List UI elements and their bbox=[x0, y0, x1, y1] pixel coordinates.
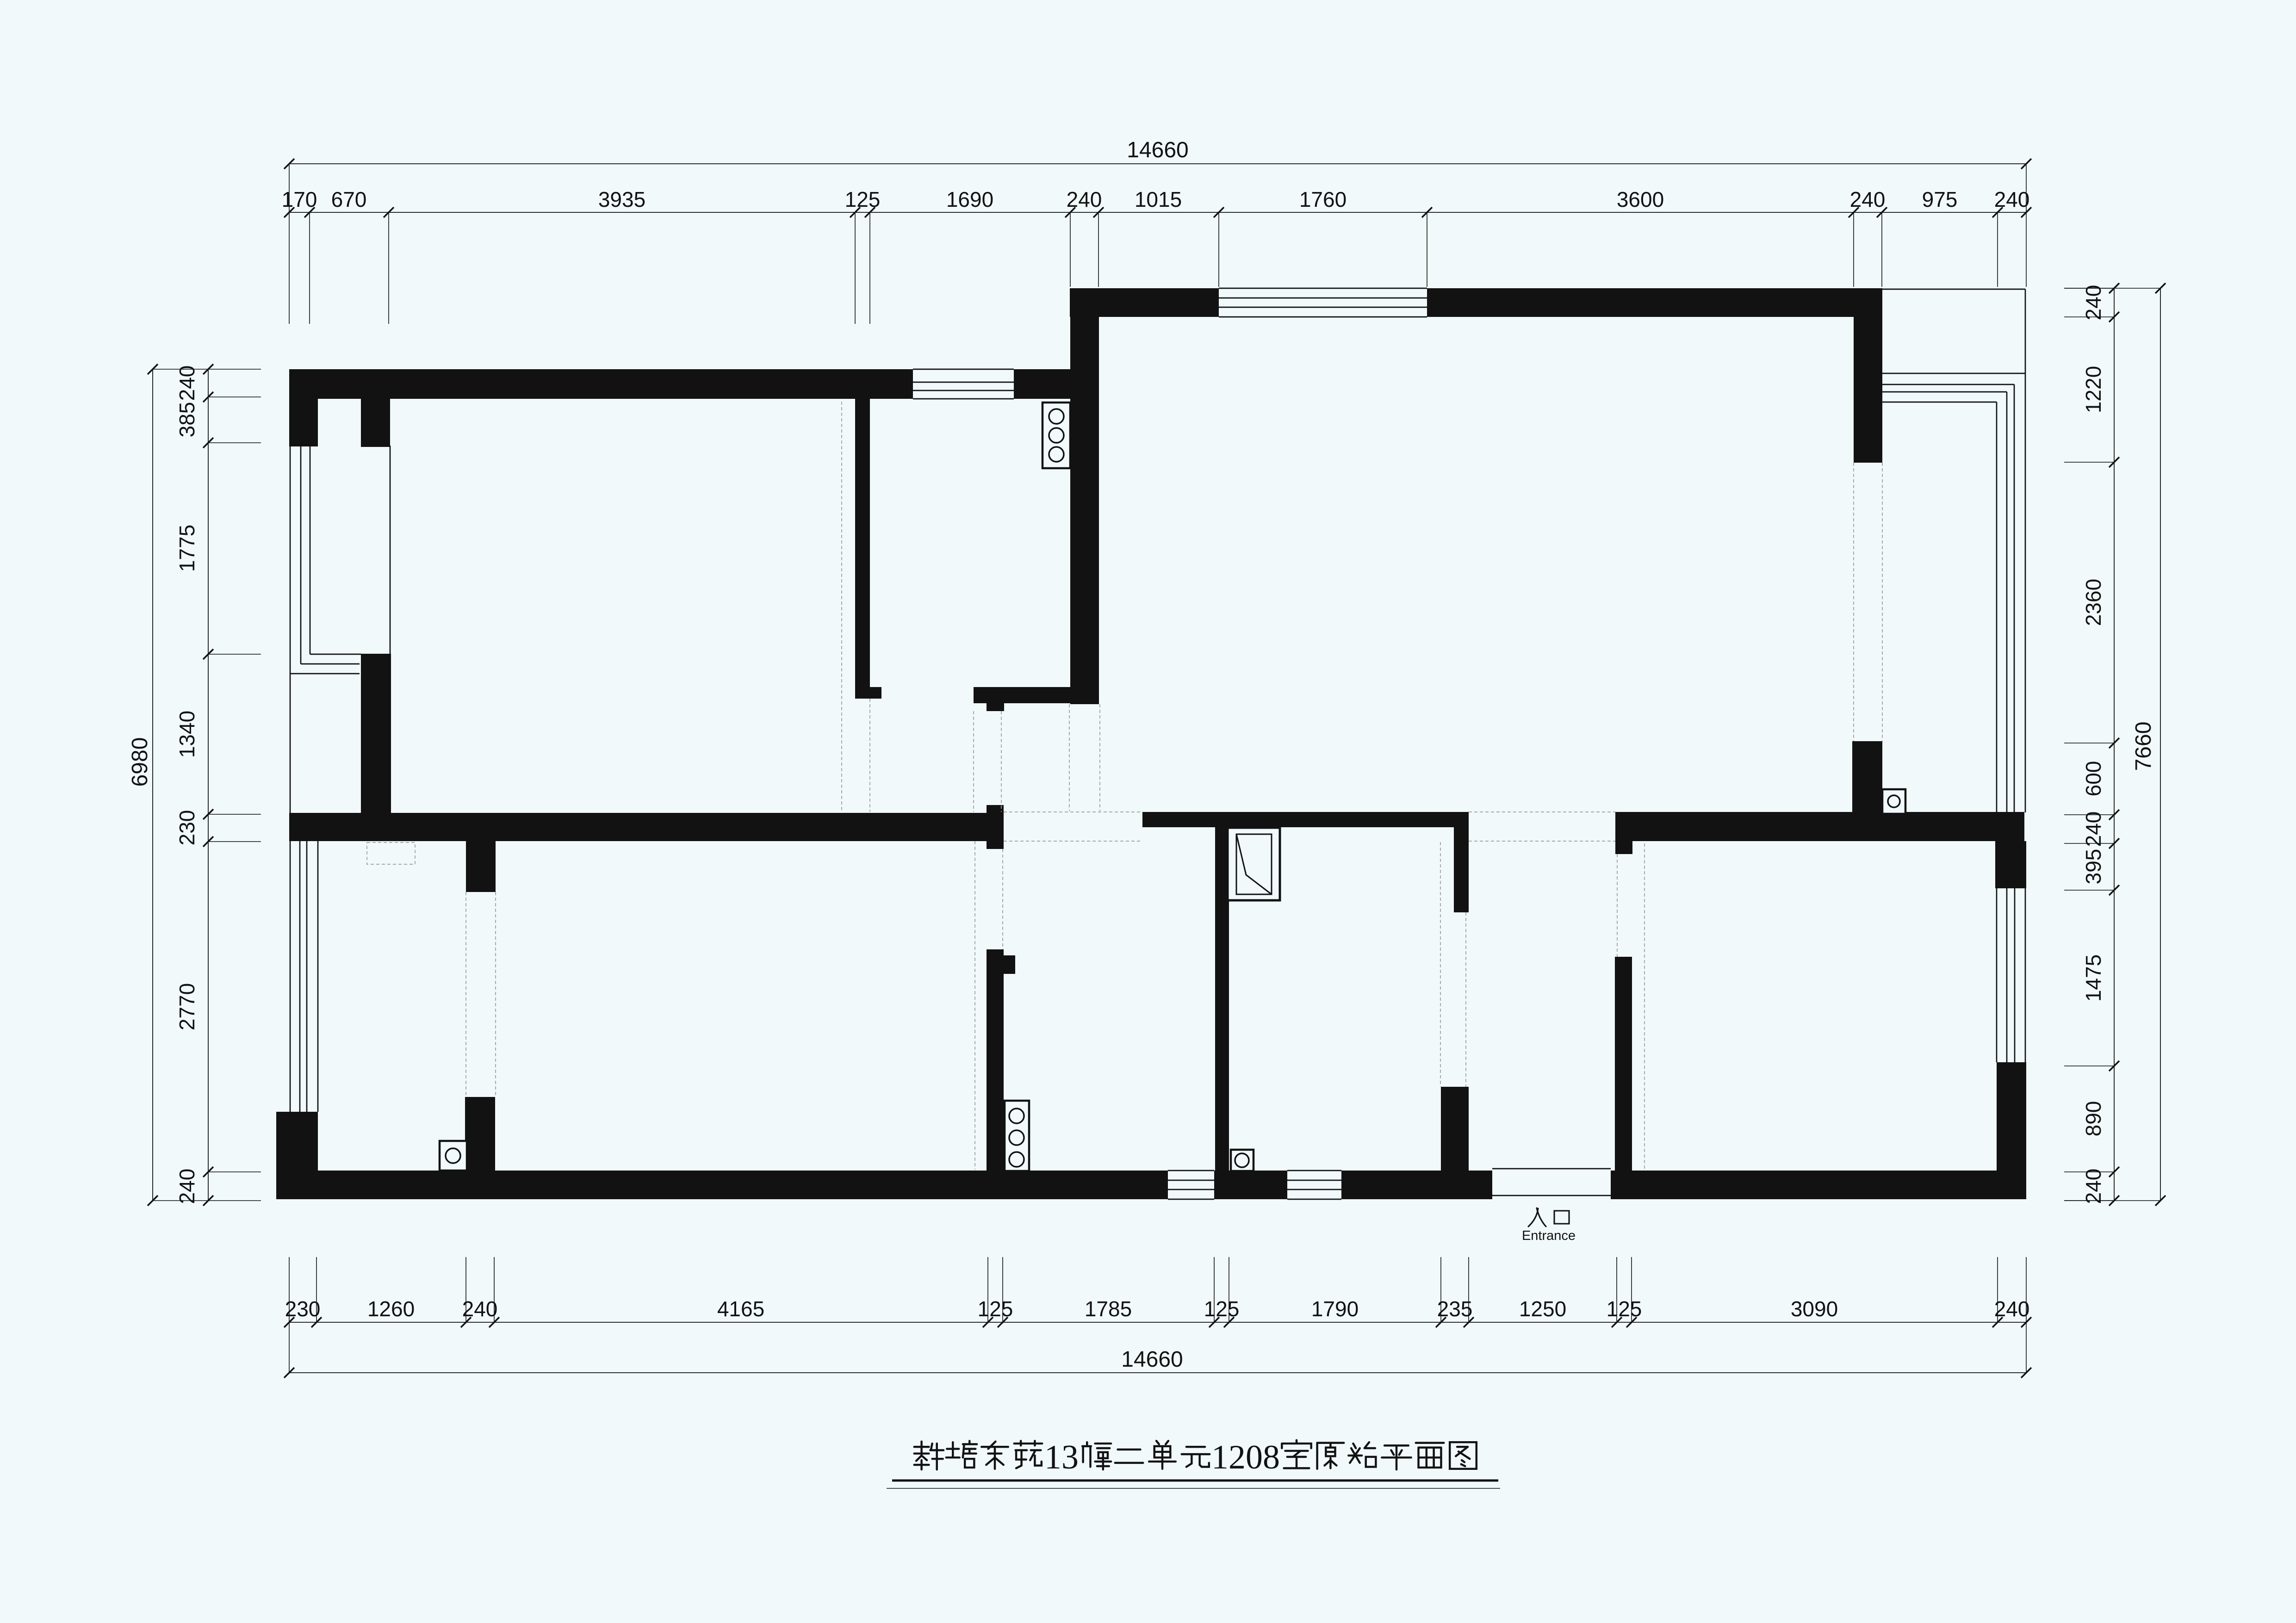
svg-text:235: 235 bbox=[1437, 1297, 1473, 1321]
svg-text:975: 975 bbox=[1922, 187, 1958, 211]
svg-text:230: 230 bbox=[175, 810, 199, 846]
svg-text:1775: 1775 bbox=[175, 525, 199, 572]
svg-text:395: 395 bbox=[2081, 849, 2105, 885]
svg-text:14660: 14660 bbox=[1121, 1347, 1183, 1372]
svg-text:1785: 1785 bbox=[1085, 1297, 1132, 1321]
svg-text:14660: 14660 bbox=[1127, 138, 1188, 162]
svg-text:1250: 1250 bbox=[1519, 1297, 1566, 1321]
svg-text:890: 890 bbox=[2081, 1101, 2105, 1137]
svg-text:600: 600 bbox=[2081, 761, 2105, 797]
svg-text:240: 240 bbox=[175, 1169, 199, 1204]
svg-text:670: 670 bbox=[331, 187, 367, 211]
svg-text:13: 13 bbox=[1044, 1438, 1079, 1476]
svg-text:240: 240 bbox=[1850, 187, 1886, 211]
svg-text:240: 240 bbox=[2081, 811, 2105, 847]
svg-text:Entrance: Entrance bbox=[1522, 1228, 1576, 1243]
svg-text:1260: 1260 bbox=[367, 1297, 415, 1321]
svg-text:230: 230 bbox=[285, 1297, 321, 1321]
svg-text:125: 125 bbox=[1607, 1297, 1642, 1321]
svg-text:240: 240 bbox=[1994, 187, 2030, 211]
svg-text:3090: 3090 bbox=[1791, 1297, 1838, 1321]
svg-text:125: 125 bbox=[845, 187, 881, 211]
svg-text:125: 125 bbox=[1204, 1297, 1240, 1321]
svg-text:4165: 4165 bbox=[717, 1297, 764, 1321]
svg-text:125: 125 bbox=[978, 1297, 1013, 1321]
svg-text:240: 240 bbox=[1994, 1297, 2030, 1321]
svg-text:385: 385 bbox=[175, 402, 199, 438]
svg-text:1790: 1790 bbox=[1311, 1297, 1359, 1321]
svg-text:3600: 3600 bbox=[1617, 187, 1664, 211]
svg-text:1760: 1760 bbox=[1299, 187, 1347, 211]
svg-text:1208: 1208 bbox=[1211, 1438, 1280, 1476]
svg-text:6980: 6980 bbox=[128, 737, 152, 787]
svg-text:240: 240 bbox=[2081, 285, 2105, 321]
svg-text:2360: 2360 bbox=[2081, 579, 2105, 626]
svg-text:1340: 1340 bbox=[175, 711, 199, 758]
svg-text:240: 240 bbox=[1067, 187, 1102, 211]
svg-text:1015: 1015 bbox=[1135, 187, 1182, 211]
svg-text:1690: 1690 bbox=[946, 187, 993, 211]
svg-text:1220: 1220 bbox=[2081, 366, 2105, 413]
svg-text:170: 170 bbox=[282, 187, 317, 211]
svg-text:1475: 1475 bbox=[2081, 954, 2105, 1002]
svg-text:240: 240 bbox=[175, 365, 199, 401]
svg-text:7660: 7660 bbox=[2131, 722, 2156, 771]
svg-text:2770: 2770 bbox=[175, 983, 199, 1030]
svg-text:3935: 3935 bbox=[598, 187, 645, 211]
svg-text:240: 240 bbox=[2081, 1169, 2105, 1204]
svg-text:240: 240 bbox=[462, 1297, 498, 1321]
